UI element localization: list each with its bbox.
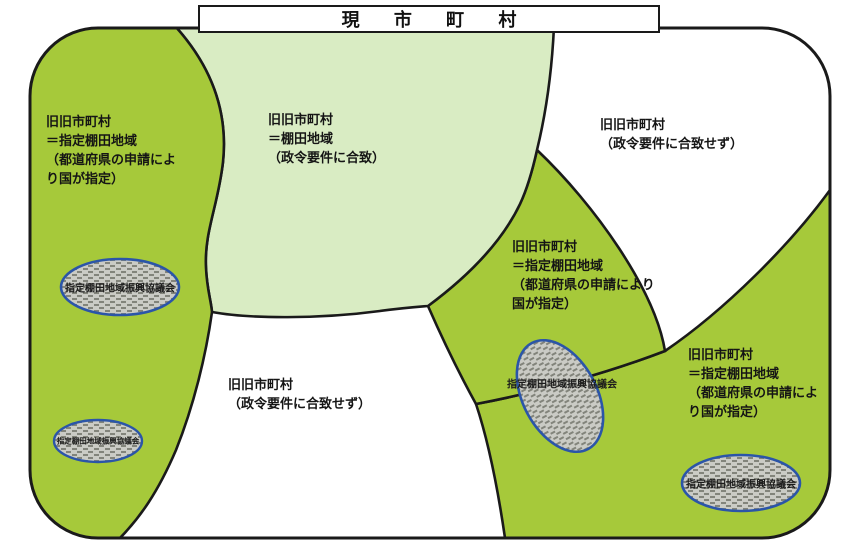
diagram-title: 現 市 町 村 bbox=[342, 6, 531, 32]
label-region-center: 旧旧市町村 ＝棚田地域 （政令要件に合致） bbox=[268, 111, 385, 168]
label-region-mid: 旧旧市町村 ＝指定棚田地域 （都道府県の申請により 国が指定） bbox=[512, 238, 655, 314]
label-region-bottom-center: 旧旧市町村 （政令要件に合致せず） bbox=[228, 376, 371, 414]
label-council-bottom-right: 指定棚田地域振興協議会 bbox=[686, 476, 796, 491]
label-council-left-upper: 指定棚田地域振興協議会 bbox=[65, 280, 175, 295]
label-council-middle: 指定棚田地域振興協議会 bbox=[507, 376, 617, 391]
label-region-left: 旧旧市町村 ＝指定棚田地域 （都道府県の申請によ り国が指定） bbox=[46, 113, 176, 189]
terraced-area-diagram: 現 市 町 村 旧旧市町村 ＝指定棚田地域 （都道府県の申請によ り国が指定） … bbox=[0, 0, 860, 550]
label-council-left-lower: 指定棚田地域振興協議会 bbox=[57, 436, 140, 447]
label-region-bottom-right: 旧旧市町村 ＝指定棚田地域 （都道府県の申請によ り国が指定） bbox=[688, 346, 818, 422]
title-box: 現 市 町 村 bbox=[198, 5, 660, 33]
diagram-canvas bbox=[0, 0, 860, 550]
label-region-top-right: 旧旧市町村 （政令要件に合致せず） bbox=[600, 116, 743, 154]
